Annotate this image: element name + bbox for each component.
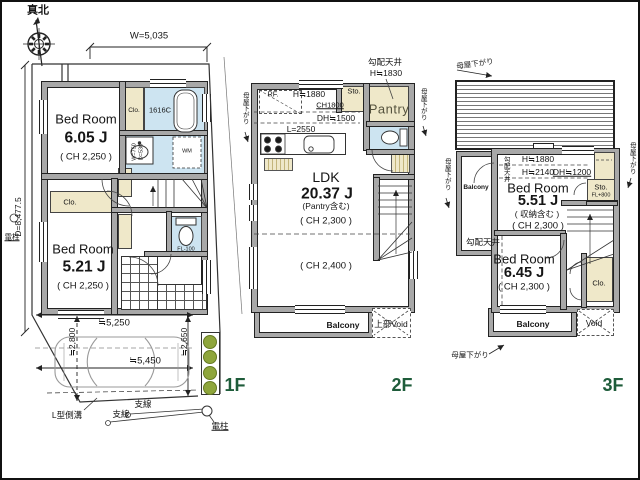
- f1-closet1-label: Clo.: [128, 108, 140, 115]
- f3-h1880-label: H≒1880: [522, 155, 554, 164]
- f1-depth-dim: D=8,477.5: [14, 197, 23, 236]
- f2-balcony-door: [295, 305, 345, 314]
- f3-moya-left-label: 母屋下がり: [443, 158, 450, 191]
- f1-bedroom2-ch: ( CH 2,250 ): [57, 281, 109, 291]
- f2-storage-label: Sto.: [347, 87, 360, 95]
- f1-park-right-dim: ≒2,650: [180, 328, 189, 356]
- f2-wall: [374, 178, 379, 260]
- f1-entry-door: [202, 260, 211, 294]
- f3-balcony-door: [500, 305, 546, 314]
- f3-moya-bottom-label: 母屋下がり: [451, 351, 489, 359]
- f3-sloped-side-label: 勾配天井: [502, 156, 509, 182]
- f2-sloped-h: H≒1830: [370, 69, 402, 78]
- bush-icon: [203, 350, 217, 364]
- f2-kitchen-counter: [260, 133, 346, 155]
- f2-h1880-label: H≒1880: [293, 90, 325, 99]
- f1-wall: [42, 174, 207, 179]
- f3-moya-right-label: 母屋下がり: [628, 142, 635, 175]
- f1-toilet-fl-label: FL-100: [177, 247, 194, 253]
- f3-void-label: Void: [586, 319, 603, 328]
- f3-storage-label: Sto.: [594, 183, 607, 191]
- f2-window: [249, 247, 258, 289]
- f3-wall: [495, 231, 565, 235]
- f3-bedroom1-ch: ( CH 2,300 ): [512, 221, 564, 231]
- f1-pole-bottom-label: 電柱: [211, 422, 228, 431]
- f2-sloped-title: 勾配天井: [368, 58, 402, 67]
- f3-wall: [587, 202, 617, 205]
- f3-moya-top-label: 母屋下がり: [456, 58, 494, 71]
- f3-balcony-left-label: Balcony: [463, 185, 488, 192]
- f2-ch1800-label: CH1800: [316, 101, 344, 109]
- f1-wash-d-label: D=530: [139, 144, 145, 160]
- f1-wash-w-label: W=750: [132, 143, 138, 161]
- f1-bath-unit-label: 1616C: [149, 106, 171, 114]
- floorplan-sheet: 真北 W=5,035 D=8,477.5 電柱 Clo. 1616C Bed R…: [0, 0, 640, 480]
- f3-wall: [582, 254, 586, 307]
- compass-icon: [23, 17, 55, 66]
- f1-width-dim: W=5,035: [130, 31, 168, 41]
- f2-ldk-area: 20.37 J: [301, 186, 353, 202]
- f1-wall: [112, 208, 207, 212]
- f3-bedroom2-area: 6.45 J: [504, 266, 544, 281]
- f3-storage-fl-label: FL+800: [592, 193, 611, 199]
- f3-floor-tag: 3F: [602, 376, 623, 394]
- f3-h2140-label: H≒2140: [522, 168, 554, 177]
- f1-park-left-dim: ≒2,800: [68, 328, 77, 356]
- f1-bedroom1-ch: ( CH 2,250 ): [60, 152, 112, 162]
- bush-icon: [203, 366, 217, 380]
- bush-icon: [203, 381, 217, 395]
- f2-floor-tag: 2F: [391, 376, 412, 394]
- f1-floor-tag: 1F: [224, 376, 245, 394]
- f3-bedroom1-area: 5.51 J: [518, 194, 558, 209]
- f1-washer-label: WM: [182, 149, 192, 155]
- f2-ldk-note: (Pantry含む): [302, 202, 349, 211]
- f2-ldk-name: LDK: [312, 170, 339, 184]
- f1-wall: [167, 212, 171, 254]
- f3-bedroom2-name: Bed Room: [493, 253, 554, 266]
- f1-window: [58, 310, 104, 319]
- f1-bedroom2-name: Bed Room: [52, 243, 113, 256]
- f2-dh1500-label: DH≒1500: [317, 114, 355, 123]
- f2-upper-void-label: 上部Void: [374, 320, 408, 329]
- f1-bedroom2-area: 5.21 J: [62, 259, 105, 275]
- f2-window: [249, 205, 258, 221]
- f3-roof-hatch: [455, 80, 615, 150]
- true-north-label: 真北: [27, 6, 49, 17]
- f2-pantry-label: Pantry: [369, 103, 410, 116]
- f2-balcony-label: Balcony: [326, 321, 359, 330]
- f1-wall: [145, 252, 207, 256]
- f1-cabinet-b: [118, 214, 132, 249]
- f1-window: [39, 100, 48, 134]
- f2-wall: [374, 175, 414, 179]
- f3-wall: [561, 234, 566, 309]
- f2-wall: [367, 122, 414, 126]
- f1-wire-b-label: 支線: [112, 410, 129, 419]
- f1-wall: [120, 131, 207, 135]
- f2-toilet-area: [369, 126, 409, 150]
- f2-fridge-label: RF.: [267, 90, 278, 98]
- f2-moya-right-label: 母屋下がり: [419, 88, 426, 121]
- f1-park-width-dim: ≒5,250: [98, 318, 130, 328]
- f1-entry-tile-a: [121, 256, 158, 310]
- f3-closet-top-area: [594, 152, 615, 180]
- f1-closet2-area: [50, 191, 116, 213]
- f1-closet2-label: Clo.: [63, 198, 76, 206]
- f1-window: [39, 222, 48, 262]
- f2-ldk-ch-lower: ( CH 2,400 ): [300, 261, 352, 271]
- f2-ldk-ch-upper: ( CH 2,300 ): [300, 216, 352, 226]
- f3-closet-label: Clo.: [592, 279, 605, 287]
- f2-window: [409, 251, 418, 279]
- f2-wall: [364, 84, 369, 150]
- f1-wire-a-label: 支線: [134, 400, 151, 409]
- f3-window: [562, 146, 594, 155]
- f2-window: [299, 80, 343, 89]
- f2-window: [249, 184, 258, 200]
- f2-floor-strip-a: [264, 158, 293, 171]
- bush-icon: [203, 335, 217, 349]
- f2-wall: [367, 150, 414, 154]
- f1-car-length-dim: ≒5,450: [129, 356, 161, 366]
- f1-bedroom1-area: 6.05 J: [64, 130, 107, 146]
- f2-moya-left-label: 母屋下がり: [241, 92, 248, 125]
- f3-bedroom1-note: ( 収納含む ): [515, 210, 559, 219]
- f3-dh1200-label: DH≒1200: [553, 168, 591, 177]
- f1-gutter-label: L型側溝: [52, 411, 82, 420]
- f3-bedroom2-ch: ( CH 2,300 ): [498, 282, 550, 292]
- f1-entry-tile-b: [157, 284, 207, 310]
- f1-window: [202, 94, 211, 122]
- f1-pole-left-label: 電柱: [5, 233, 20, 241]
- f3-sloped-room-label: 勾配天井: [466, 238, 500, 247]
- f2-counter-length-label: L=2550: [287, 125, 316, 134]
- f1-window: [150, 79, 186, 88]
- f3-balcony-bottom-label: Balcony: [516, 320, 549, 329]
- f1-bedroom1-name: Bed Room: [55, 113, 116, 126]
